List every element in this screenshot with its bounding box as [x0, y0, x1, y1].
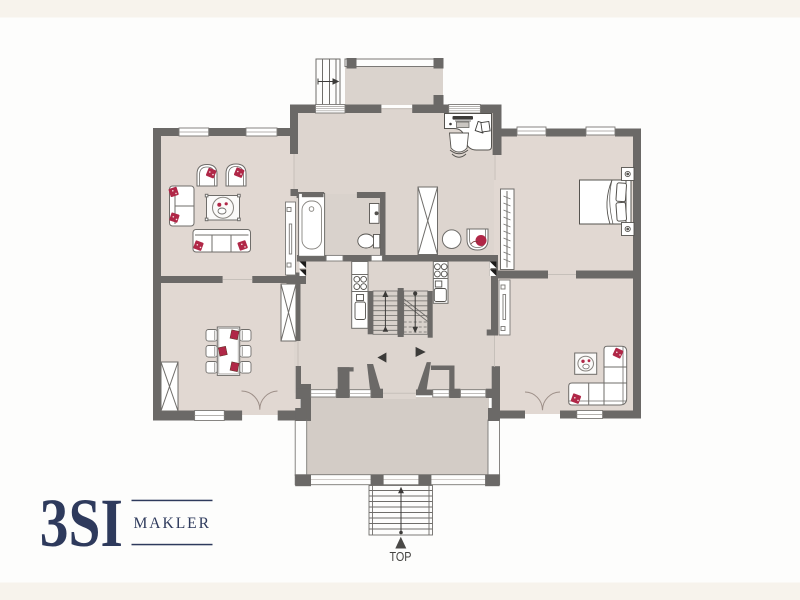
svg-text:TOP: TOP — [390, 550, 412, 564]
svg-text:MAKLER: MAKLER — [134, 515, 212, 532]
svg-text:3SI: 3SI — [40, 485, 123, 561]
